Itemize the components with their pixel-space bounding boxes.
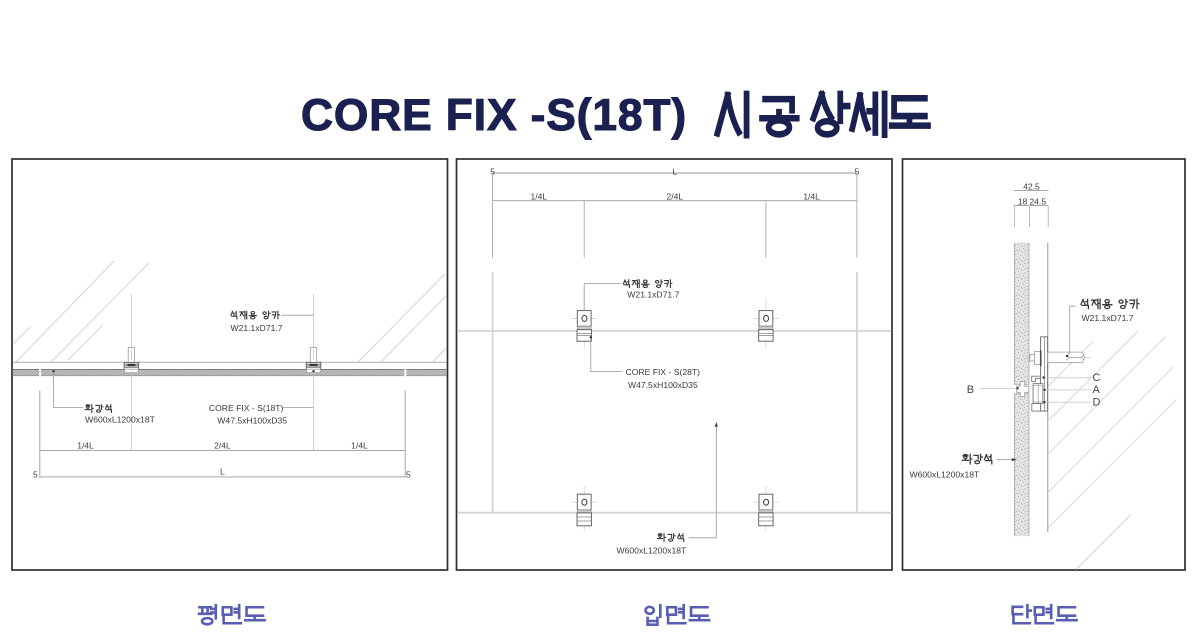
svg-text:42.5: 42.5 xyxy=(1023,181,1040,191)
svg-text:W47.5xH100xD35: W47.5xH100xD35 xyxy=(628,380,698,390)
svg-text:2/4L: 2/4L xyxy=(214,441,231,451)
svg-text:18: 18 xyxy=(1018,197,1028,207)
svg-text:1/4L: 1/4L xyxy=(531,191,548,201)
svg-text:C: C xyxy=(1093,372,1101,384)
svg-text:1/4L: 1/4L xyxy=(351,441,368,451)
svg-text:A: A xyxy=(1093,384,1101,396)
svg-text:W600xL1200x18T: W600xL1200x18T xyxy=(617,546,687,556)
svg-text:B: B xyxy=(967,384,974,396)
svg-text:W600xL1200x18T: W600xL1200x18T xyxy=(910,470,980,480)
svg-text:W21.1xD71.7: W21.1xD71.7 xyxy=(1082,313,1134,323)
svg-text:5: 5 xyxy=(33,469,38,479)
svg-text:W47.5xH100xD35: W47.5xH100xD35 xyxy=(217,416,287,426)
svg-text:CORE FIX - S(28T): CORE FIX - S(28T) xyxy=(626,367,701,377)
svg-text:1/4L: 1/4L xyxy=(803,191,820,201)
svg-text:W21.1xD71.7: W21.1xD71.7 xyxy=(627,290,679,300)
svg-text:L: L xyxy=(220,467,225,477)
svg-text:5: 5 xyxy=(406,469,411,479)
svg-text:D: D xyxy=(1093,396,1101,408)
svg-text:CORE FIX -S(18T): CORE FIX -S(18T) xyxy=(301,91,687,140)
svg-text:W21.1xD71.7: W21.1xD71.7 xyxy=(231,323,283,333)
svg-text:CORE FIX - S(18T): CORE FIX - S(18T) xyxy=(209,403,284,413)
svg-text:24.5: 24.5 xyxy=(1030,197,1047,207)
svg-text:L: L xyxy=(672,167,677,177)
svg-text:1/4L: 1/4L xyxy=(77,441,94,451)
svg-text:2/4L: 2/4L xyxy=(667,191,684,201)
svg-text:W600xL1200x18T: W600xL1200x18T xyxy=(85,415,155,425)
